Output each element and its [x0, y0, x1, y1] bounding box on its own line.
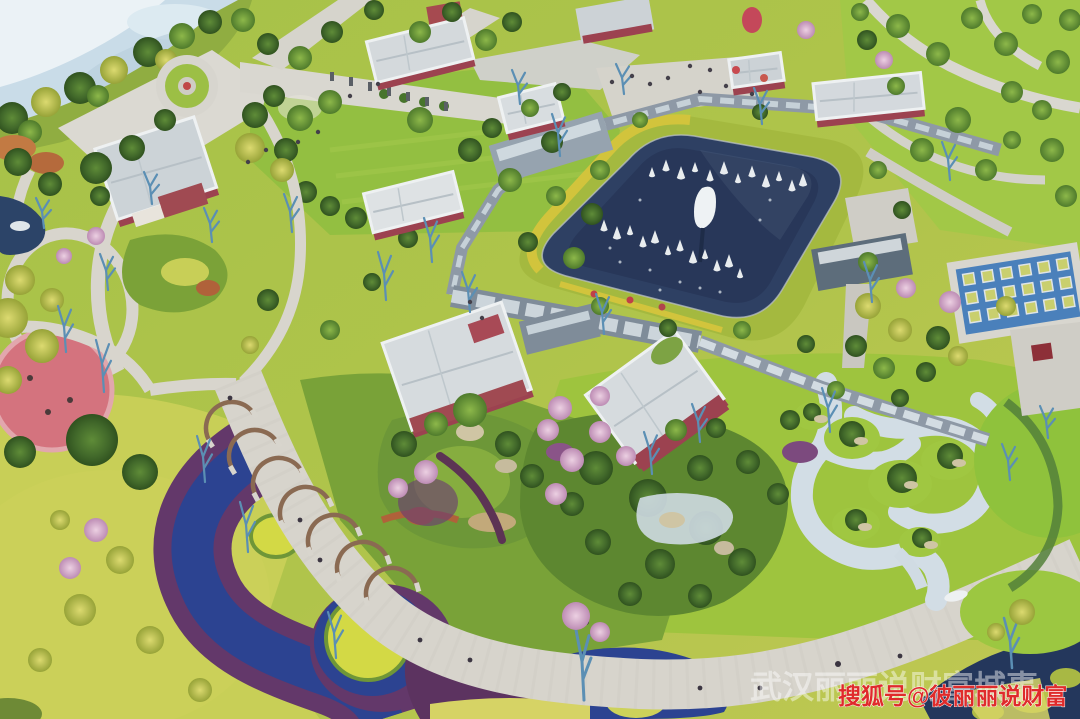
svg-text:搜狐号@彼丽丽说财富: 搜狐号@彼丽丽说财富 [838, 683, 1067, 709]
